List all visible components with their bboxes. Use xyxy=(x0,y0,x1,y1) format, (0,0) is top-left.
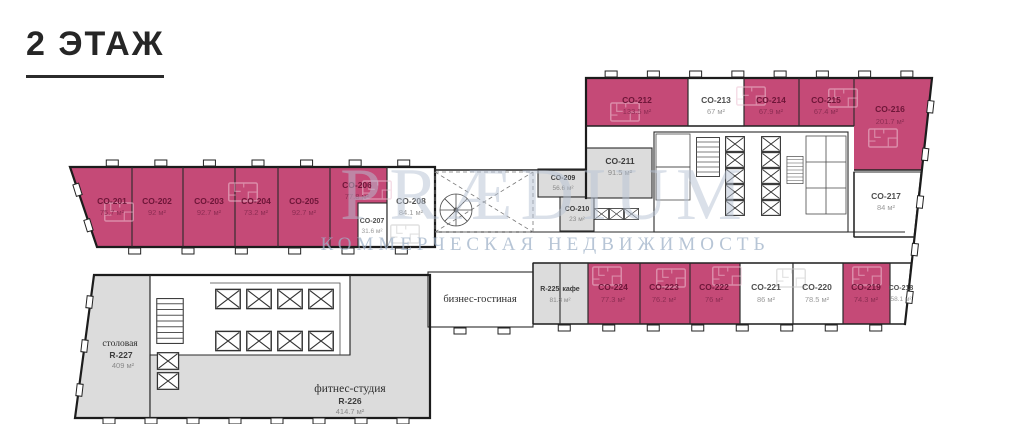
room-fitness-area: 414.7 м² xyxy=(336,407,365,416)
room-co208-label: CO-208 xyxy=(396,196,426,206)
room-co222[interactable] xyxy=(690,263,740,324)
room-fitness-name: R-226 xyxy=(338,396,361,406)
floor-plan-page: CO-201 75.7 м² CO-202 92 м² CO-203 92.7 … xyxy=(0,0,1024,424)
room-co218-label: CO-218 xyxy=(889,285,914,292)
room-co207 xyxy=(358,203,387,247)
room-co221 xyxy=(740,263,793,324)
room-co224-area: 77.3 м² xyxy=(601,295,626,304)
room-co217-label: CO-217 xyxy=(871,191,901,201)
room-co211-area: 91.5 м² xyxy=(608,168,633,177)
spiral-stair-icon xyxy=(440,194,472,226)
room-co221-label: CO-221 xyxy=(751,282,781,292)
room-co223[interactable] xyxy=(640,263,690,324)
room-co208 xyxy=(387,167,435,247)
room-co213-label: CO-213 xyxy=(701,95,731,105)
room-co208-area: 84.1 м² xyxy=(399,208,424,217)
room-co216-area: 201.7 м² xyxy=(876,117,905,126)
room-co209 xyxy=(538,169,588,197)
room-co211-label: CO-211 xyxy=(605,156,635,166)
atrium-void xyxy=(435,172,533,232)
room-canteen-label: столовая xyxy=(102,339,138,349)
room-co204-area: 73.2 м² xyxy=(244,208,269,217)
room-co210-label: CO-210 xyxy=(565,206,590,213)
room-co201-area: 75.7 м² xyxy=(100,208,125,217)
room-cafe-area: 81.8 м² xyxy=(549,297,571,304)
room-co215-area: 67.4 м² xyxy=(814,107,839,116)
page-title: 2 ЭТАЖ xyxy=(26,26,164,78)
room-co203-label: CO-203 xyxy=(194,196,224,206)
room-co207-area: 31.6 м² xyxy=(361,228,383,235)
room-co220 xyxy=(793,263,843,324)
room-co220-area: 78.5 м² xyxy=(805,295,830,304)
room-co202-area: 92 м² xyxy=(148,208,167,217)
room-co219-area: 74.3 м² xyxy=(854,295,879,304)
room-co210 xyxy=(560,197,594,231)
room-co212-label: CO-212 xyxy=(622,95,652,105)
room-co201-co205[interactable] xyxy=(70,167,387,247)
room-canteen-area: 409 м² xyxy=(112,361,135,370)
room-co205-area: 92.7 м² xyxy=(292,208,317,217)
room-co209-area: 56.6 м² xyxy=(552,185,574,192)
room-co213-area: 67 м² xyxy=(707,107,726,116)
room-co206-area: 77.8 м² xyxy=(345,192,370,201)
room-co223-area: 76.2 м² xyxy=(652,295,677,304)
room-co223-label: CO-223 xyxy=(649,282,679,292)
room-co203-area: 92.7 м² xyxy=(197,208,222,217)
room-co214-area: 67.9 м² xyxy=(759,107,784,116)
room-co209-label: CO-209 xyxy=(551,175,576,182)
room-co219-label: CO-219 xyxy=(851,282,881,292)
room-co215-label: CO-215 xyxy=(811,95,841,105)
room-co210-area: 23 м² xyxy=(569,216,586,223)
room-co214-label: CO-214 xyxy=(756,95,786,105)
room-lounge-label: бизнес-гостиная xyxy=(443,294,517,305)
room-co206-label: CO-206 xyxy=(342,180,372,190)
room-co201-label: CO-201 xyxy=(97,196,127,206)
room-canteen-name: R-227 xyxy=(109,350,132,360)
room-co217-area: 84 м² xyxy=(877,203,896,212)
room-co224[interactable] xyxy=(588,263,640,324)
room-co222-area: 76 м² xyxy=(705,295,724,304)
room-co205-label: CO-205 xyxy=(289,196,319,206)
room-co220-label: CO-220 xyxy=(802,282,832,292)
room-co219[interactable] xyxy=(843,263,890,324)
room-co221-area: 86 м² xyxy=(757,295,776,304)
room-co224-label: CO-224 xyxy=(598,282,628,292)
room-co204-label: CO-204 xyxy=(241,196,271,206)
room-co207-label: CO-207 xyxy=(360,218,385,225)
room-co218-area: 58.1 м² xyxy=(890,296,912,303)
room-co216-label: CO-216 xyxy=(875,104,905,114)
room-fitness-label: фитнес-студия xyxy=(314,383,386,395)
room-co212-area: 133.5 м² xyxy=(623,107,652,116)
room-co202-label: CO-202 xyxy=(142,196,172,206)
room-co222-label: CO-222 xyxy=(699,282,729,292)
